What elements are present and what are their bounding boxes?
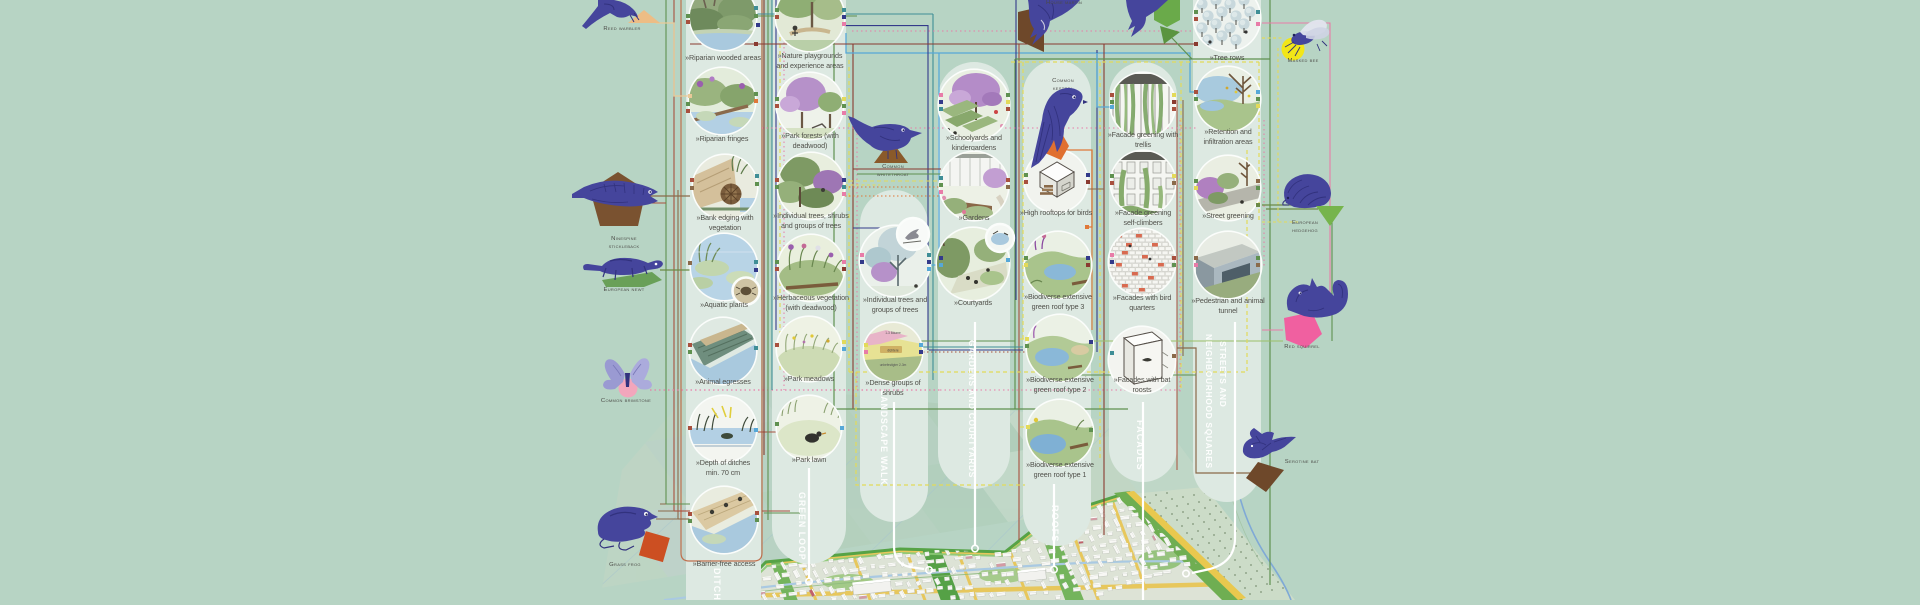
svg-text:dichtere: dichtere [887,349,899,353]
svg-text:»Biodiverse extensive: »Biodiverse extensive [1026,460,1094,469]
svg-text:»Park meadows: »Park meadows [784,374,835,383]
svg-text:»Gardens: »Gardens [959,213,990,222]
svg-text:green roof type 2: green roof type 2 [1034,385,1087,394]
svg-text:»Facade greening: »Facade greening [1115,208,1171,217]
svg-text:shrubs: shrubs [883,388,904,397]
svg-text:»Biodiverse extensive: »Biodiverse extensive [1026,375,1094,384]
svg-text:»High rooftops for birds: »High rooftops for birds [1020,208,1093,217]
svg-text:roosts: roosts [1133,385,1152,394]
svg-text:green roof type 1: green roof type 1 [1034,470,1087,479]
svg-text:»Facade greening with: »Facade greening with [1108,130,1179,139]
svg-text:»Park lawn: »Park lawn [792,455,827,464]
svg-text:European: European [1292,220,1318,226]
svg-text:FACADES: FACADES [1135,420,1145,471]
svg-text:»Depth of ditches: »Depth of ditches [696,458,751,467]
svg-text:»Nature playgrounds: »Nature playgrounds [778,51,843,60]
svg-text:tunnel: tunnel [1219,306,1238,315]
svg-text:GARDENS AND COURTYARDS: GARDENS AND COURTYARDS [967,340,977,478]
svg-text:»Retention and: »Retention and [1204,127,1251,136]
svg-text:STREETS AND: STREETS AND [1218,341,1228,407]
svg-text:self-climbers: self-climbers [1123,218,1163,227]
svg-text:unbefestigter 2-3m: unbefestigter 2-3m [880,363,907,367]
svg-text:»Biodiverse extensive: »Biodiverse extensive [1024,292,1092,301]
svg-text:DITCH: DITCH [712,568,722,600]
svg-text:NEIGHBOURHOOD SQUARES: NEIGHBOURHOOD SQUARES [1204,334,1214,469]
svg-text:and experience areas: and experience areas [776,61,844,70]
svg-text:»Street greening: »Street greening [1202,211,1254,220]
svg-text:1-3 Bäume: 1-3 Bäume [885,331,901,335]
svg-text:stickleback: stickleback [609,244,640,250]
svg-text:»Riparian fringes: »Riparian fringes [696,134,749,143]
svg-text:»Riparian wooded areas: »Riparian wooded areas [685,53,761,62]
svg-text:»Tree rows: »Tree rows [1210,53,1245,62]
svg-text:»Facades with bat: »Facades with bat [1114,375,1171,384]
svg-text:Grass frog: Grass frog [609,562,641,568]
svg-text:deadwood): deadwood) [793,141,828,150]
svg-text:trellis: trellis [1135,140,1152,149]
svg-text:»Barrier-free access: »Barrier-free access [693,559,756,568]
svg-text:»Park forests (with: »Park forests (with [781,131,839,140]
svg-text:Common: Common [1052,78,1074,84]
svg-text:»Individual trees and: »Individual trees and [863,295,927,304]
svg-text:(with deadwood): (with deadwood) [785,303,836,312]
svg-text:ROOFS: ROOFS [1050,505,1060,543]
svg-text:LANDSCAPE WALK: LANDSCAPE WALK [879,390,889,486]
svg-text:groups of trees: groups of trees [872,305,919,314]
svg-text:GREEN LOOP: GREEN LOOP [797,492,807,561]
svg-text:»Pedestrian and animal: »Pedestrian and animal [1191,296,1265,305]
svg-text:green roof type 3: green roof type 3 [1032,302,1085,311]
svg-text:»Facades with bird: »Facades with bird [1113,293,1172,302]
svg-text:infiltration areas: infiltration areas [1204,137,1253,146]
svg-text:whitethroat: whitethroat [877,172,910,178]
svg-text:Masked bee: Masked bee [1287,58,1318,64]
svg-text:min. 70 cm: min. 70 cm [706,468,740,477]
svg-text:Reed warbler: Reed warbler [603,26,640,32]
svg-text:Common brimstone: Common brimstone [601,398,651,404]
svg-text:Ninespine: Ninespine [611,236,637,242]
svg-text:»Schoolyards and: »Schoolyards and [946,133,1002,142]
svg-text:»Individual trees, shrubs: »Individual trees, shrubs [773,211,849,220]
svg-text:»Herbaceous vegetation: »Herbaceous vegetation [773,293,849,302]
svg-text:Common: Common [882,164,904,170]
svg-text:and groups of trees: and groups of trees [781,221,842,230]
svg-text:European newt: European newt [603,287,644,293]
svg-text:House martin: House martin [1046,0,1082,6]
svg-text:vegetation: vegetation [709,223,741,232]
svg-text:»Aquatic plants: »Aquatic plants [700,300,748,309]
svg-text:quarters: quarters [1129,303,1155,312]
svg-text:»Bank edging with: »Bank edging with [696,213,753,222]
svg-text:»Dense groups of: »Dense groups of [865,378,920,387]
svg-text:Serotine bat: Serotine bat [1285,459,1320,465]
svg-text:»Courtyards: »Courtyards [954,298,993,307]
svg-text:Red squirrel: Red squirrel [1284,344,1320,350]
svg-text:»Animal egresses: »Animal egresses [695,377,751,386]
svg-text:hedgehog: hedgehog [1292,228,1318,234]
